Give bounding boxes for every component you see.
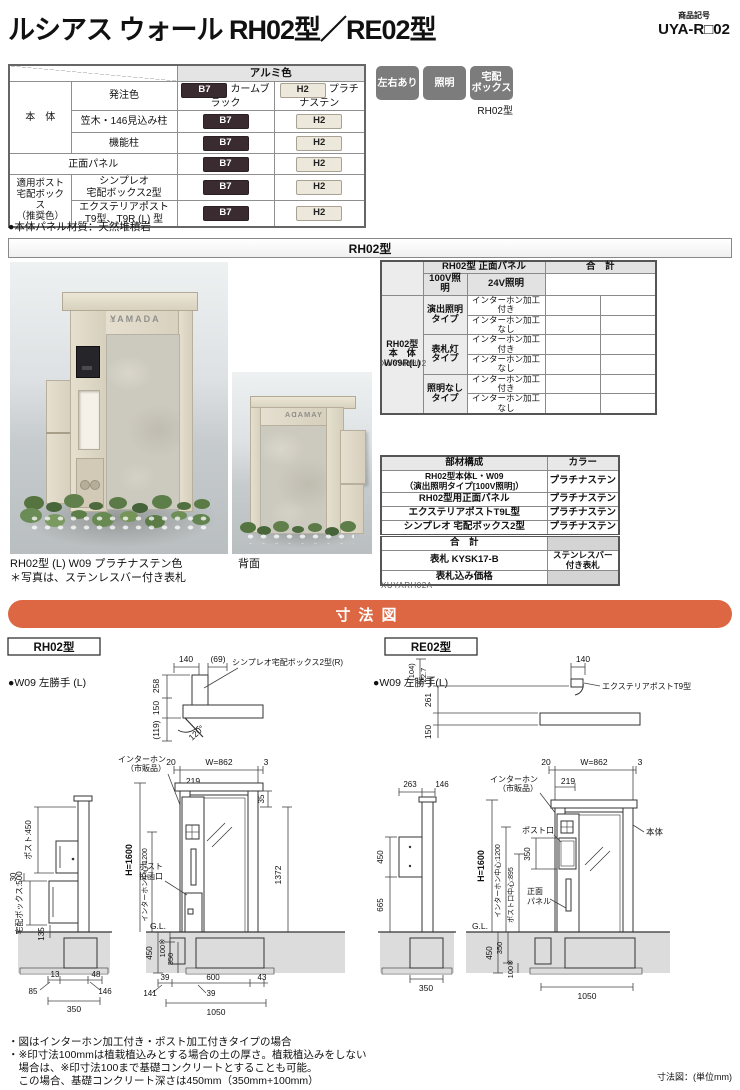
parts-table-code: XUYARH02A — [381, 581, 432, 590]
dim-label: 450 — [145, 946, 154, 960]
section-bar-rh02: RH02型 — [8, 238, 732, 258]
dim-label: 135 — [37, 927, 46, 941]
nameplate-text: YAMADA — [110, 314, 161, 324]
product-photo-back: YAMADA — [232, 372, 372, 554]
color-spec-table: アルミ色 本 体 発注色 B7カームブラック H2プラチナステン 笠木・146見… — [8, 64, 366, 228]
unit-note: 寸法図：(単位mm) — [657, 1070, 732, 1083]
parts-row-color: ステンレスバー 付き表札 — [547, 551, 619, 571]
dim-label: 665 — [376, 898, 385, 912]
dim-label: 120° — [187, 723, 207, 742]
price-cell — [600, 374, 656, 394]
front-view: 20 W=862 3 219 インターホン （市販品） ポスト 投函口 35 — [118, 755, 345, 1017]
dim-label: 350 — [495, 942, 504, 955]
footnote-line: この場合、基礎コンクリート深さは450mm（350mm+100mm） — [8, 1075, 367, 1088]
parts-row-color: プラチナステン — [547, 521, 619, 536]
h2-chip: H2 — [296, 136, 342, 151]
option-cell: インターホン加工付き — [467, 335, 545, 355]
front-panel-label: 正面パネル — [9, 154, 177, 175]
option-cell: インターホン加工なし — [467, 354, 545, 374]
price-body-label: RH02型 本 体 W09R(L) — [381, 295, 423, 414]
parts-table: 部材構成カラー RH02型本体L・W09 （演出照明タイプ[100V照明]）プラ… — [380, 455, 620, 586]
material-note: ●本体パネル材質：天然堆積岩 — [8, 219, 151, 234]
col-24v: 24V照明 — [467, 274, 545, 296]
dim-label: 150 — [151, 701, 161, 715]
price-cell — [545, 335, 600, 355]
dimension-section-bar: 寸法図 — [8, 600, 732, 628]
price-cell — [545, 354, 600, 374]
badge-delivery-box: 宅配 ボックス — [470, 66, 513, 100]
parts-row-name: シンプレオ 宅配ボックス2型 — [381, 521, 547, 536]
footnote-line: ・※印寸法100mmは植栽植込みとする場合の土の厚さ。植栽植込みをしない — [8, 1049, 367, 1062]
b7-chip: B7 — [181, 83, 227, 98]
dim-label: 350 — [419, 983, 433, 993]
price-table-code: XUYARH02 — [381, 359, 427, 368]
delivery-box-upper — [340, 430, 366, 484]
dim-label: 22.7 — [419, 668, 428, 683]
price-cell — [600, 335, 656, 355]
badge-model-label: RH02型 — [376, 102, 513, 117]
photo-caption-1: RH02型 (L) W09 プラチナステン色 — [10, 557, 182, 571]
catalog-page: ルシアス ウォール RH02型／RE02型 商品記号 UYA-R□02 アルミ色… — [0, 0, 740, 1090]
price-cell — [545, 295, 600, 315]
dim-label: 20 — [166, 757, 176, 767]
dim-label: 146 — [98, 987, 112, 996]
h2-chip: H2 — [296, 157, 342, 172]
option-cell: インターホン加工なし — [467, 315, 545, 335]
control-dial — [80, 480, 90, 490]
price-table: RH02型 正面パネル 合 計 100V照明 24V照明 RH02型 本 体 W… — [380, 260, 657, 415]
top-cap — [62, 292, 198, 311]
delivery-box-lower — [340, 484, 364, 534]
photo-caption-2: ＊写真は、ステンレスバー付き表札 — [10, 571, 186, 585]
price-cell — [545, 374, 600, 394]
plan-view: 140 エクステリアポストT9型 (104) 22.7 261 150 — [407, 654, 691, 739]
footnote-line: 場合は、※印寸法100まで基礎コンクリートとすることも可能。 — [8, 1062, 367, 1075]
dim-label: 39 — [161, 973, 170, 982]
price-header-product: RH02型 正面パネル — [423, 261, 545, 274]
dim-label: 450 — [485, 946, 494, 960]
dim-label: H=1600 — [476, 850, 486, 882]
dim-label: 450 — [376, 850, 385, 864]
row-label: 笠木・146見込み柱 — [71, 111, 177, 133]
h2-chip: H2 — [280, 83, 326, 98]
control-dial — [90, 480, 100, 490]
side-view: 263 146 450 665 350 — [376, 780, 456, 993]
dim-label: 20 — [541, 757, 551, 767]
price-cell — [600, 295, 656, 315]
option-cell: インターホン加工付き — [467, 374, 545, 394]
h2-cell: H2プラチナステン — [274, 82, 365, 111]
dim-label: 350 — [166, 953, 175, 966]
price-cell — [545, 315, 600, 335]
dim-label: 140 — [576, 654, 590, 664]
dim-label: 140 — [179, 654, 193, 664]
h2-chip: H2 — [296, 206, 342, 221]
interphone-label: （市販品） — [498, 783, 538, 793]
parts-header: 部材構成 — [381, 456, 547, 471]
product-code-label: 商品記号 — [658, 10, 730, 21]
row-label: 機能柱 — [71, 133, 177, 154]
price-cell — [545, 394, 600, 414]
stone-panel — [260, 424, 328, 534]
right-post — [178, 308, 193, 512]
color-table-header: アルミ色 — [177, 65, 365, 82]
parts-row-color: プラチナステン — [547, 507, 619, 521]
plan-view: 140 (69) シンプレオ宅配ボックス2型(R) 258 150 (119) … — [151, 654, 343, 742]
plan-post-label: エクステリアポストT9型 — [602, 682, 691, 691]
badge-left-right: 左右あり — [376, 66, 419, 100]
model-label-box: RH02型 — [8, 638, 100, 655]
parts-row-name: RH02型本体L・W09 （演出照明タイプ[100V照明]） — [381, 471, 547, 493]
col-100v: 100V照明 — [423, 274, 467, 296]
b7-cell: B7カームブラック — [177, 82, 274, 111]
hand-label: ●W09 左勝手 (L) — [8, 676, 86, 689]
group-body-label: 本 体 — [9, 82, 71, 154]
post-slot-label: ポスト口 — [522, 826, 554, 835]
nameplate-slot — [78, 390, 100, 450]
parts-total-row: 合 計 — [381, 536, 547, 551]
option-cell: インターホン加工なし — [467, 394, 545, 414]
parts-row-name: 表札 KYSK17-B — [381, 551, 547, 571]
model-label-box: RE02型 — [385, 638, 477, 655]
photo-caption-back: 背面 — [238, 557, 260, 571]
feature-badges: 左右あり 照明 宅配 ボックス — [376, 66, 517, 100]
dim-label: 35 — [257, 794, 266, 803]
dim-label: 13 — [51, 970, 60, 979]
na-cell — [547, 571, 619, 586]
dim-label: 146 — [435, 780, 449, 789]
body-label: 本体 — [646, 827, 664, 837]
price-header-total: 合 計 — [545, 261, 656, 274]
interphone-label: インターホン — [118, 755, 166, 764]
model-label: RE02型 — [411, 640, 452, 654]
b7-chip: B7 — [203, 114, 249, 129]
parts-row-color: プラチナステン — [547, 493, 619, 507]
dim-label: 219 — [561, 776, 575, 786]
dim-label: ポスト口中心:895 — [506, 867, 515, 923]
dim-label: 350 — [523, 847, 532, 861]
na-cell — [547, 536, 619, 551]
dim-label: 1050 — [207, 1007, 226, 1017]
dim-label: 1050 — [578, 991, 597, 1001]
dim-label: H=1600 — [124, 844, 134, 876]
parts-row-name: RH02型用正面パネル — [381, 493, 547, 507]
dim-label: 48 — [92, 970, 101, 979]
flower-dots — [28, 514, 210, 530]
front-view: 20 W=862 3 219 インターホン （市販品） ポスト口 350 本体 — [466, 757, 670, 1001]
dim-label: 263 — [403, 780, 417, 789]
dim-label: 261 — [423, 693, 433, 707]
dim-label: 3 — [264, 757, 269, 767]
dim-label: インターホン中心:1200 — [493, 844, 502, 918]
b7-chip: B7 — [203, 206, 249, 221]
diagonal-cell — [9, 65, 177, 82]
option-cell: インターホン加工付き — [467, 295, 545, 315]
panel-label: パネル — [527, 897, 551, 906]
parts-row-color: プラチナステン — [547, 471, 619, 493]
price-cell — [600, 394, 656, 414]
row-label: シンプレオ 宅配ボックス2型 — [71, 175, 177, 201]
h2-chip: H2 — [296, 180, 342, 195]
product-code-box: 商品記号 UYA-R□02 — [658, 10, 730, 38]
delivery-box-seam — [46, 432, 72, 434]
nameplate-mirrored: YAMADA — [266, 410, 322, 421]
dim-label: 150 — [423, 725, 433, 739]
parts-color-header: カラー — [547, 456, 619, 471]
dim-label: ポスト:450 — [24, 820, 33, 860]
price-cell — [600, 315, 656, 335]
dim-label: 141 — [143, 989, 157, 998]
dim-label: インターホン中心:1200 — [140, 848, 149, 922]
b7-chip: B7 — [203, 180, 249, 195]
dim-label: 39 — [207, 989, 216, 998]
dim-label: 100※ — [506, 960, 515, 979]
nameplate: ⌂ YAMADA — [110, 314, 184, 328]
model-label: RH02型 — [34, 640, 75, 654]
dim-label: 1372 — [273, 865, 283, 884]
dim-label: W=862 — [205, 757, 232, 767]
intercom-unit — [76, 346, 100, 378]
footnotes: ・図はインターホン加工付き・ポスト加工付きタイプの場合 ・※印寸法100mmは植… — [8, 1036, 367, 1089]
interphone-label: インターホン — [490, 775, 538, 784]
order-color-label: 発注色 — [71, 82, 177, 111]
flower-dots — [244, 532, 354, 544]
dim-label: W=862 — [580, 757, 607, 767]
interphone-label: （市販品） — [126, 763, 166, 773]
price-cell — [600, 354, 656, 374]
dim-label: 350 — [67, 1004, 81, 1014]
type-label: 表札灯 タイプ — [423, 335, 467, 374]
footnote-line: ・図はインターホン加工付き・ポスト加工付きタイプの場合 — [8, 1036, 367, 1049]
plan-post-label: シンプレオ宅配ボックス2型(R) — [232, 657, 343, 667]
b7-chip: B7 — [203, 157, 249, 172]
dim-label: 600 — [206, 973, 220, 982]
rh02-dimension-drawing: RH02型 ●W09 左勝手 (L) 140 (69) シンプレオ宅配ボックス2… — [0, 635, 370, 1030]
intercom-speaker — [82, 366, 92, 370]
type-label: 演出照明 タイプ — [423, 295, 467, 334]
gl-label: G.L. — [150, 921, 166, 931]
side-view: ポスト:450 30 宅配ボックス:500 135 13 48 85 146 3… — [9, 796, 112, 1014]
corner-cell — [381, 261, 423, 295]
dim-label: 258 — [151, 679, 161, 693]
dim-label: (69) — [210, 654, 225, 664]
panel-label: 正面 — [527, 887, 543, 896]
b7-chip: B7 — [203, 136, 249, 151]
dim-label: 3 — [638, 757, 643, 767]
page-title: ルシアス ウォール RH02型／RE02型 — [8, 8, 436, 47]
dim-label: (104) — [407, 663, 416, 681]
stone-panel — [106, 334, 180, 510]
product-code: UYA-R□02 — [658, 21, 730, 38]
dim-label: (119) — [151, 720, 161, 739]
badge-lighting: 照明 — [423, 66, 466, 100]
h2-chip: H2 — [296, 114, 342, 129]
product-photo-front: ⌂ YAMADA — [10, 262, 228, 554]
dim-label: 宅配ボックス:500 — [14, 871, 24, 935]
re02-dimension-drawing: RE02型 ●W09 左勝手(L) 140 エクステリアポストT9型 (104)… — [370, 635, 740, 1030]
dim-label: 85 — [29, 987, 38, 996]
parts-row-name: エクステリアポストT9L型 — [381, 507, 547, 521]
gl-label: G.L. — [472, 921, 488, 931]
type-label: 照明なし タイプ — [423, 374, 467, 414]
dim-label: 43 — [258, 973, 267, 982]
